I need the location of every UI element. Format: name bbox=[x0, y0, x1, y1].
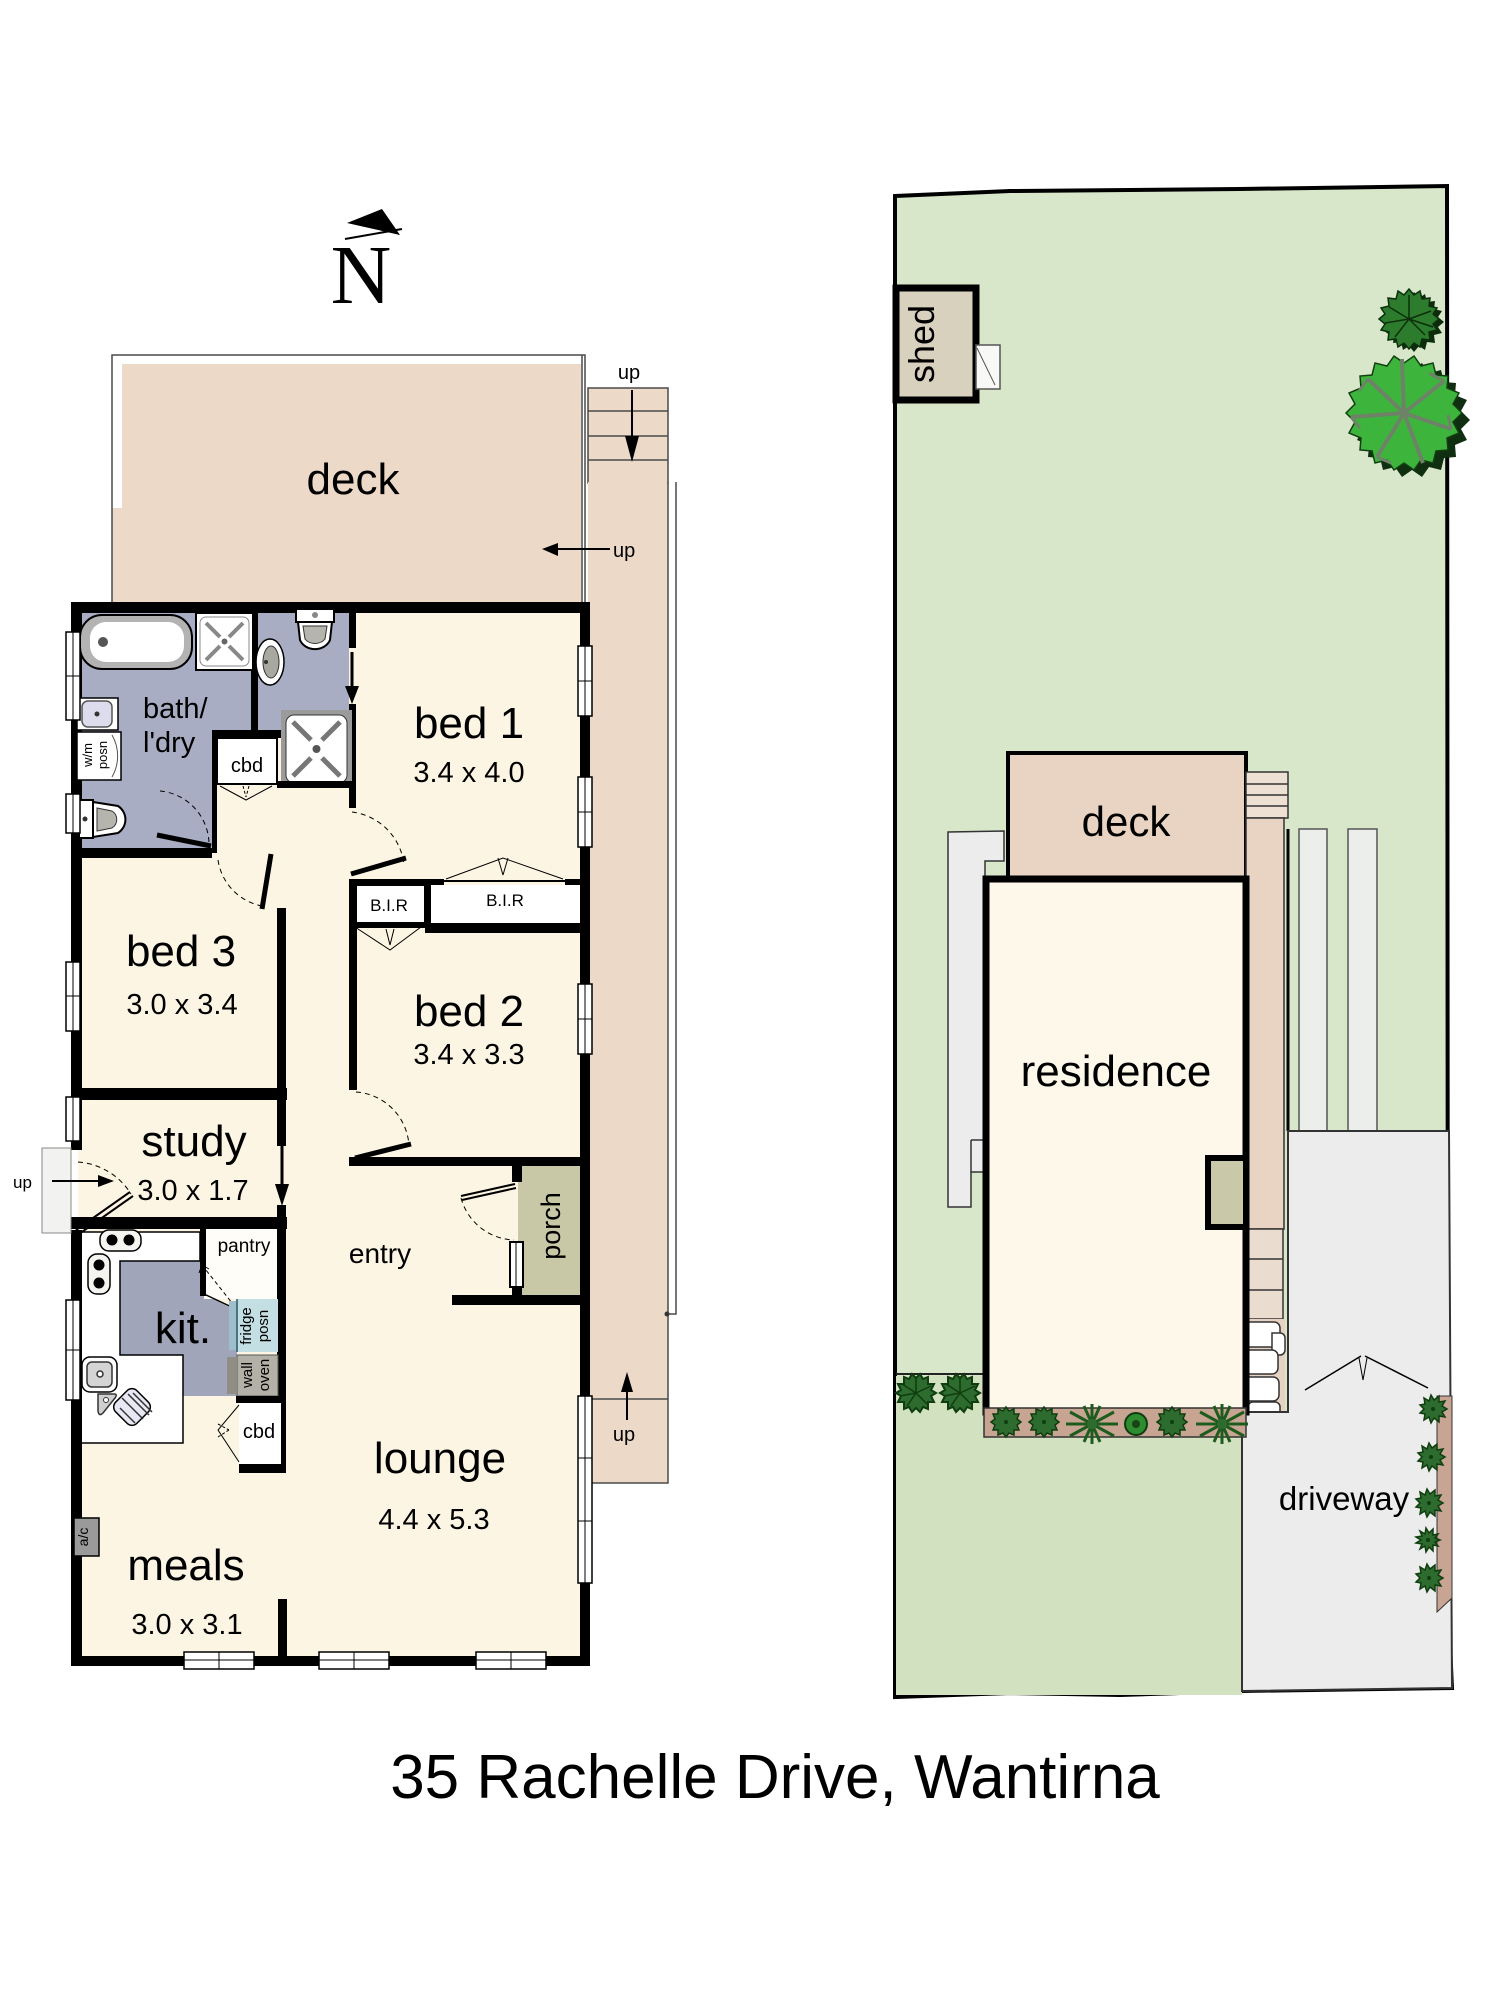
svg-text:porch: porch bbox=[536, 1192, 566, 1260]
svg-text:4.4 x 5.3: 4.4 x 5.3 bbox=[378, 1504, 489, 1536]
svg-text:deck: deck bbox=[1082, 798, 1172, 845]
svg-text:posn: posn bbox=[95, 741, 110, 769]
svg-text:bath/: bath/ bbox=[143, 693, 208, 725]
svg-text:3.4 x 4.0: 3.4 x 4.0 bbox=[413, 757, 524, 789]
svg-text:residence: residence bbox=[1021, 1047, 1212, 1096]
svg-text:l'dry: l'dry bbox=[143, 727, 196, 759]
svg-text:meals: meals bbox=[127, 1541, 244, 1590]
svg-text:3.0 x 3.1: 3.0 x 3.1 bbox=[131, 1609, 242, 1641]
svg-text:bed 2: bed 2 bbox=[414, 987, 524, 1036]
svg-text:3.0 x 1.7: 3.0 x 1.7 bbox=[137, 1175, 248, 1207]
svg-text:shed: shed bbox=[901, 305, 942, 383]
svg-text:wall: wall bbox=[239, 1362, 256, 1389]
svg-text:B.I.R: B.I.R bbox=[370, 896, 408, 915]
svg-text:cbd: cbd bbox=[231, 755, 263, 777]
svg-text:N: N bbox=[331, 229, 392, 322]
svg-text:up: up bbox=[613, 540, 635, 562]
svg-text:a/c: a/c bbox=[75, 1528, 91, 1547]
svg-text:entry: entry bbox=[349, 1238, 411, 1269]
svg-text:study: study bbox=[141, 1117, 246, 1166]
svg-text:fridge: fridge bbox=[238, 1307, 255, 1345]
svg-text:35 Rachelle Drive, Wantirna: 35 Rachelle Drive, Wantirna bbox=[390, 1743, 1160, 1812]
svg-text:bed 1: bed 1 bbox=[414, 699, 524, 748]
svg-text:pantry: pantry bbox=[218, 1236, 271, 1257]
svg-text:oven: oven bbox=[256, 1359, 273, 1392]
svg-text:up: up bbox=[613, 1424, 635, 1446]
svg-text:up: up bbox=[13, 1173, 32, 1192]
svg-text:cbd: cbd bbox=[243, 1421, 275, 1443]
svg-text:w/m: w/m bbox=[80, 743, 95, 768]
svg-text:driveway: driveway bbox=[1279, 1480, 1410, 1517]
svg-text:kit.: kit. bbox=[155, 1304, 211, 1353]
svg-text:deck: deck bbox=[307, 455, 401, 504]
svg-text:B.I.R: B.I.R bbox=[486, 891, 524, 910]
svg-text:posn: posn bbox=[255, 1310, 272, 1343]
svg-text:lounge: lounge bbox=[374, 1434, 506, 1483]
svg-text:bed 3: bed 3 bbox=[126, 927, 236, 976]
svg-text:up: up bbox=[618, 362, 640, 384]
svg-text:3.0 x 3.4: 3.0 x 3.4 bbox=[126, 989, 237, 1021]
svg-text:3.4 x 3.3: 3.4 x 3.3 bbox=[413, 1039, 524, 1071]
